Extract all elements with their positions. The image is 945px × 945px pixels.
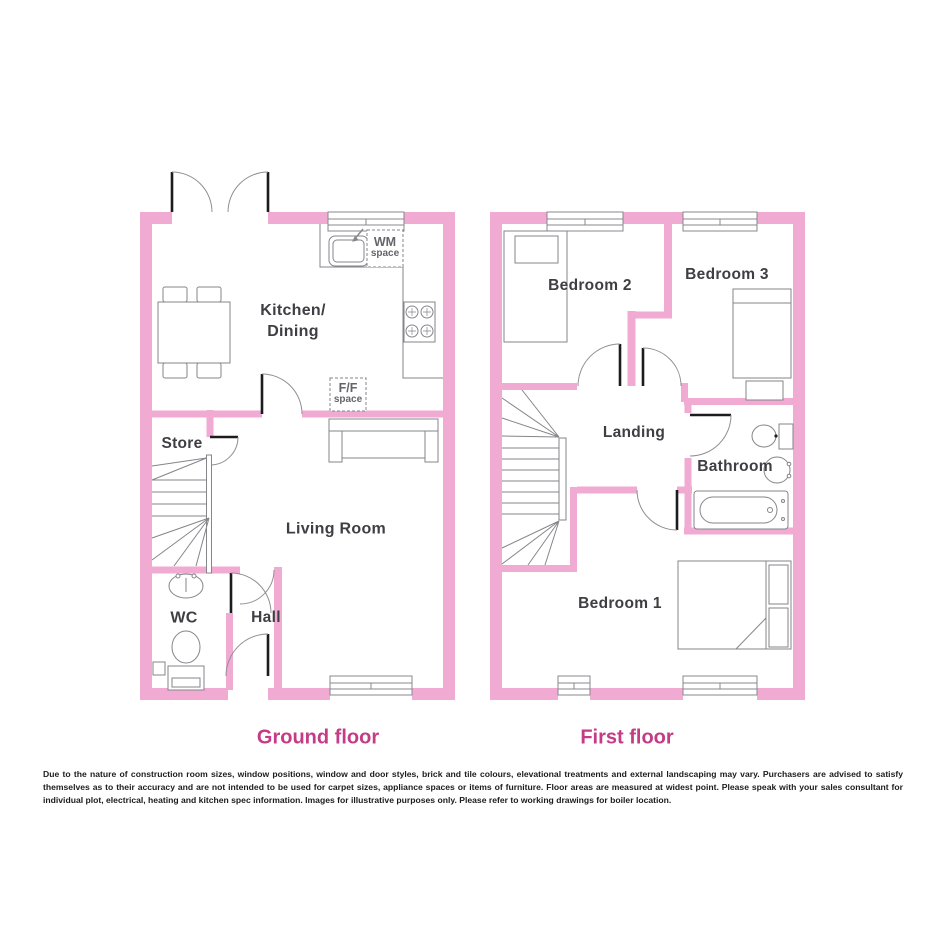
landing-label: Landing	[603, 424, 665, 442]
basin-icon	[169, 574, 203, 598]
ground-door-leaves	[172, 172, 268, 676]
bedroom3-label: Bedroom 3	[685, 266, 769, 284]
toilet-icon	[752, 424, 793, 449]
first-floor-plan	[490, 212, 799, 700]
bath-icon	[694, 491, 788, 529]
bedroom1-label: Bedroom 1	[578, 595, 662, 613]
first-stairs-icon	[502, 390, 566, 565]
first-floor-title: First floor	[580, 727, 673, 750]
service-box	[153, 662, 165, 675]
bedroom2-label: Bedroom 2	[548, 277, 632, 295]
disclaimer-text: Due to the nature of construction room s…	[43, 768, 903, 807]
ff-space-label: F/F space	[334, 382, 362, 406]
window-icon	[330, 676, 412, 695]
wc-label: WC	[170, 608, 197, 629]
wc-fittings	[153, 574, 204, 690]
bathroom-fittings	[694, 424, 793, 529]
window-icon	[328, 212, 404, 231]
bathroom-label: Bathroom	[697, 458, 773, 476]
ground-door-arcs	[172, 172, 302, 676]
window-icon	[683, 676, 757, 695]
hall-label: Hall	[251, 609, 281, 627]
sofa-icon	[329, 419, 438, 462]
toilet-icon	[168, 631, 204, 690]
window-icon	[558, 676, 590, 695]
living-room-label: Living Room	[286, 519, 386, 540]
bed-icon	[678, 561, 791, 649]
ground-stairs-icon	[152, 455, 212, 573]
wm-space-label: WM space	[371, 236, 399, 260]
sink-icon	[329, 229, 368, 266]
kitchen-dining-label: Kitchen/ Dining	[260, 300, 326, 342]
hob-icon	[404, 302, 435, 342]
ground-floor-title: Ground floor	[257, 727, 379, 750]
bed-icon	[733, 289, 791, 400]
window-icon	[547, 212, 623, 231]
floorplan-page: Kitchen/ Dining Store Living Room WC Hal…	[0, 0, 945, 945]
store-label: Store	[161, 435, 202, 453]
window-icon	[683, 212, 757, 231]
dining-table-icon	[158, 287, 230, 378]
french-door-icon	[172, 172, 268, 212]
